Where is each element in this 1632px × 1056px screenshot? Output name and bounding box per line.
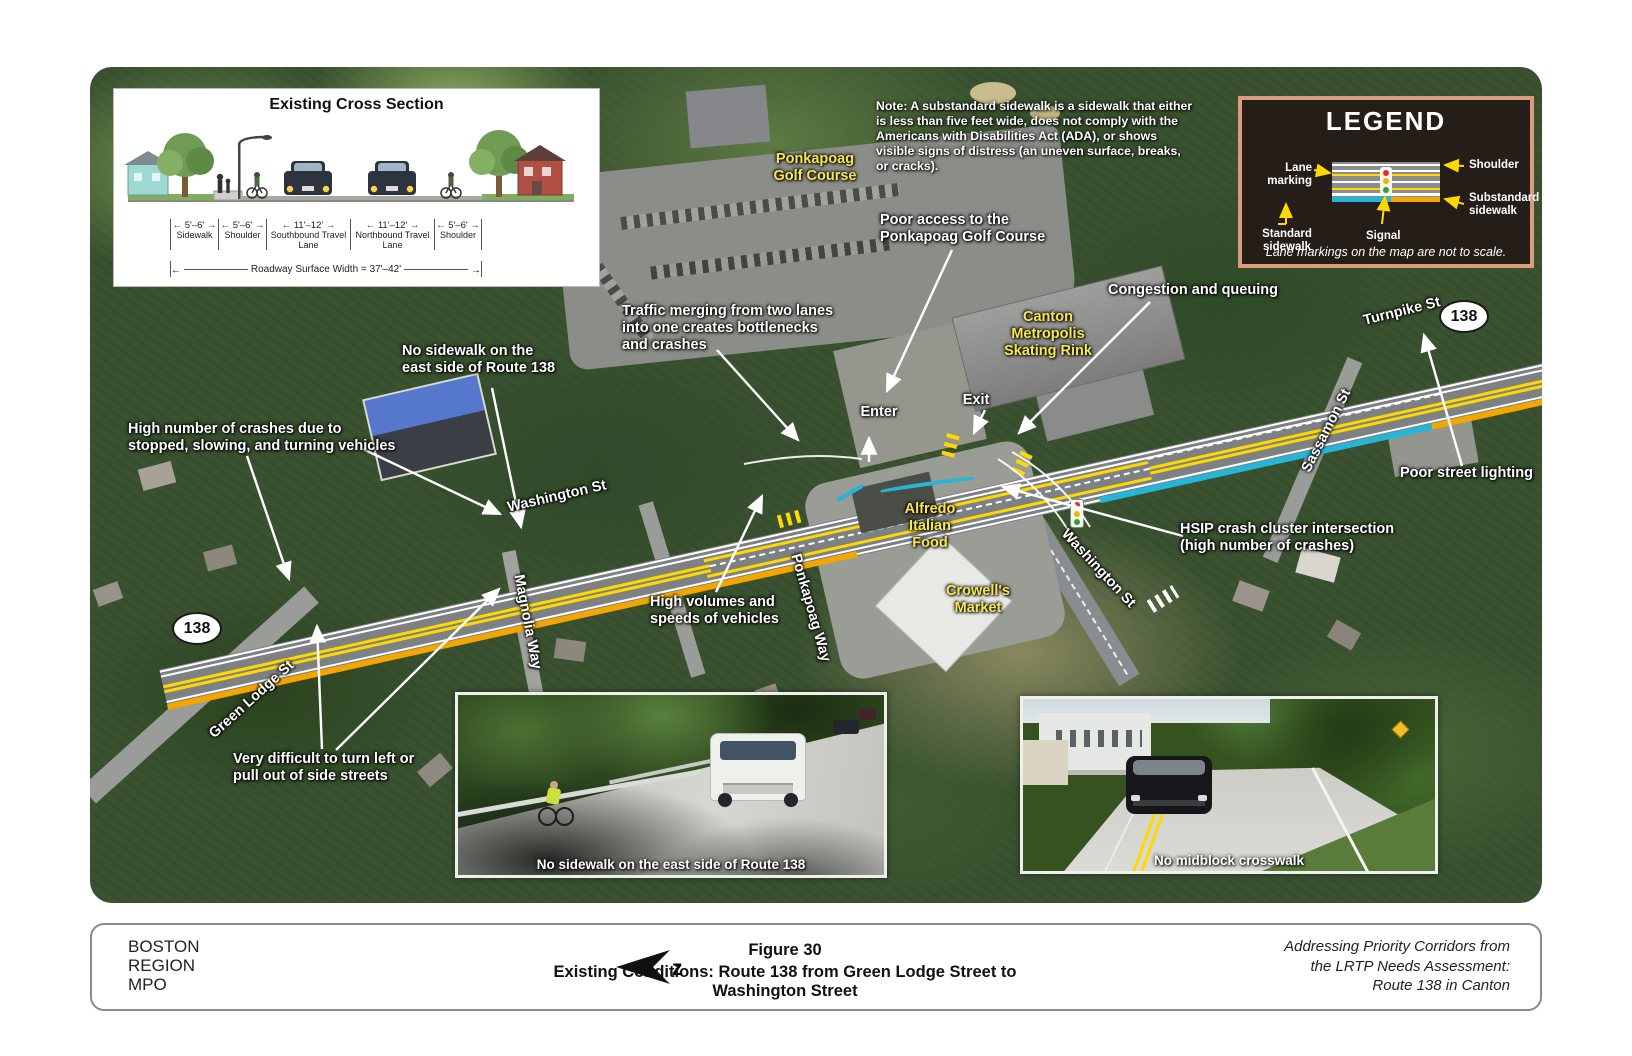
photo-no-sidewalk: No sidewalk on the east side of Route 13… [455, 692, 887, 878]
legend-label-signal: Signal [1366, 230, 1401, 243]
suv-windshield [1133, 760, 1205, 775]
annotation-poor-lighting: Poor street lighting [1400, 465, 1533, 482]
standard-sidewalk-line-east [1099, 424, 1432, 503]
signal-red [1074, 502, 1080, 508]
photo-distant-car [858, 709, 876, 720]
dimension-label: Northbound Travel Lane [351, 231, 434, 250]
clubhouse-building [686, 85, 771, 149]
photo-suv [1126, 756, 1212, 814]
traffic-signal-icon [1070, 499, 1084, 528]
dimension-label: Sidewalk [171, 231, 218, 241]
substandard-sidewalk-note: Note: A substandard sidewalk is a sidewa… [876, 99, 1194, 174]
project-name: Addressing Priority Corridors from the L… [1284, 937, 1510, 996]
photo-warning-sign [1391, 720, 1409, 738]
dimension-cell: 11'–12' Southbound Travel Lane [266, 219, 350, 250]
annotation-high-crashes: High number of crashes due to stopped, s… [128, 421, 395, 455]
house [554, 638, 586, 662]
arrow-right-glyph [471, 260, 481, 278]
dimension-cell: 11'–12' Northbound Travel Lane [350, 219, 434, 250]
annotation-exit: Exit [963, 392, 990, 409]
annotation-traffic-merging: Traffic merging from two lanes into one … [622, 303, 833, 354]
photo-cyclist [538, 781, 572, 825]
house [1327, 619, 1361, 650]
center-line-yellow [164, 569, 711, 693]
dimension-rule [404, 269, 468, 270]
route-138-shield: 138 [1439, 300, 1489, 333]
crosswalk-white [1147, 585, 1180, 613]
house [1232, 580, 1270, 612]
place-golf-course: Ponkapoag Golf Course [774, 151, 857, 185]
legend-label-standard: Standard sidewalk [1256, 228, 1318, 253]
total-width-row: Roadway Surface Width = 37'–42' [170, 261, 482, 277]
annotation-congestion: Congestion and queuing [1108, 282, 1278, 299]
signal-green [1074, 519, 1080, 525]
figure-title-block: Figure 30 Existing Conditions: Route 138… [535, 941, 1035, 1001]
house [203, 544, 237, 571]
photo-shuttle-bus [710, 733, 806, 801]
route-138-shield: 138 [172, 612, 222, 645]
figure-footer: BOSTON REGION MPO z Figure 30 Existing C… [90, 923, 1542, 1011]
legend-label-substandard: Substandard sidewalk [1469, 192, 1539, 217]
figure-title: Existing Conditions: Route 138 from Gree… [535, 963, 1035, 1001]
bus-windshield [720, 741, 797, 760]
total-width-label: Roadway Surface Width = 37'–42' [251, 264, 401, 275]
figure-page: No sidewalk on the east side of Route 13… [0, 0, 1632, 1056]
agency-name: BOSTON REGION MPO [128, 937, 199, 994]
place-alfredo: Alfredo Italian Food [905, 501, 956, 552]
dimension-cell: 5'–6' Shoulder [218, 219, 266, 250]
arrow-left-glyph [171, 260, 181, 278]
photo-distant-car [833, 720, 859, 734]
annotation-poor-access: Poor access to the Ponkapoag Golf Course [880, 212, 1045, 246]
suv-headlight [1131, 795, 1140, 801]
cross-section-title: Existing Cross Section [114, 96, 599, 114]
annotation-no-sidewalk-top: No sidewalk on the east side of Route 13… [402, 343, 555, 377]
house [417, 753, 453, 788]
bike-wheel [555, 807, 574, 826]
annotation-high-volumes: High volumes and speeds of vehicles [650, 594, 779, 628]
dimension-label: Shoulder [219, 231, 266, 241]
cross-section-illustration [114, 115, 601, 219]
house [93, 581, 124, 607]
suv-grille [1133, 800, 1205, 806]
photo-caption: No sidewalk on the east side of Route 13… [458, 857, 884, 872]
figure-number: Figure 30 [535, 941, 1035, 960]
legend-label-lane-marking: Lane marking [1244, 162, 1312, 187]
legend-label-shoulder: Shoulder [1469, 159, 1519, 172]
legend-panel: LEGEND [1238, 96, 1534, 268]
signal-amber [1074, 511, 1080, 517]
annotation-hsip: HSIP crash cluster intersection (high nu… [1180, 521, 1394, 555]
place-crowells: Crowell's Market [946, 583, 1010, 617]
bus-wheel [718, 793, 732, 807]
dimension-label: Southbound Travel Lane [267, 231, 350, 250]
photo-no-crosswalk: No midblock crosswalk [1020, 696, 1438, 874]
median-hatch-yellow [777, 509, 805, 528]
place-skating-rink: Canton Metropolis Skating Rink [1004, 309, 1092, 360]
dimension-row: 5'–6' Sidewalk 5'–6' Shoulder 11'–12' So… [170, 219, 482, 250]
house [138, 461, 177, 491]
cyclist-torso [546, 787, 562, 805]
annotation-enter: Enter [860, 404, 897, 421]
bus-grille [723, 783, 792, 794]
dimension-rule [184, 269, 248, 270]
annotation-very-difficult: Very difficult to turn left or pull out … [233, 751, 414, 785]
cross-section-panel: Existing Cross Section [113, 88, 600, 287]
dimension-cell: 5'–6' Sidewalk [170, 219, 218, 250]
photo-building [1023, 740, 1068, 785]
photo-caption: No midblock crosswalk [1023, 853, 1435, 868]
suv-headlight [1198, 795, 1207, 801]
center-line-yellow [163, 564, 710, 688]
dimension-label: Shoulder [435, 231, 481, 241]
dimension-cell: 5'–6' Shoulder [434, 219, 482, 250]
